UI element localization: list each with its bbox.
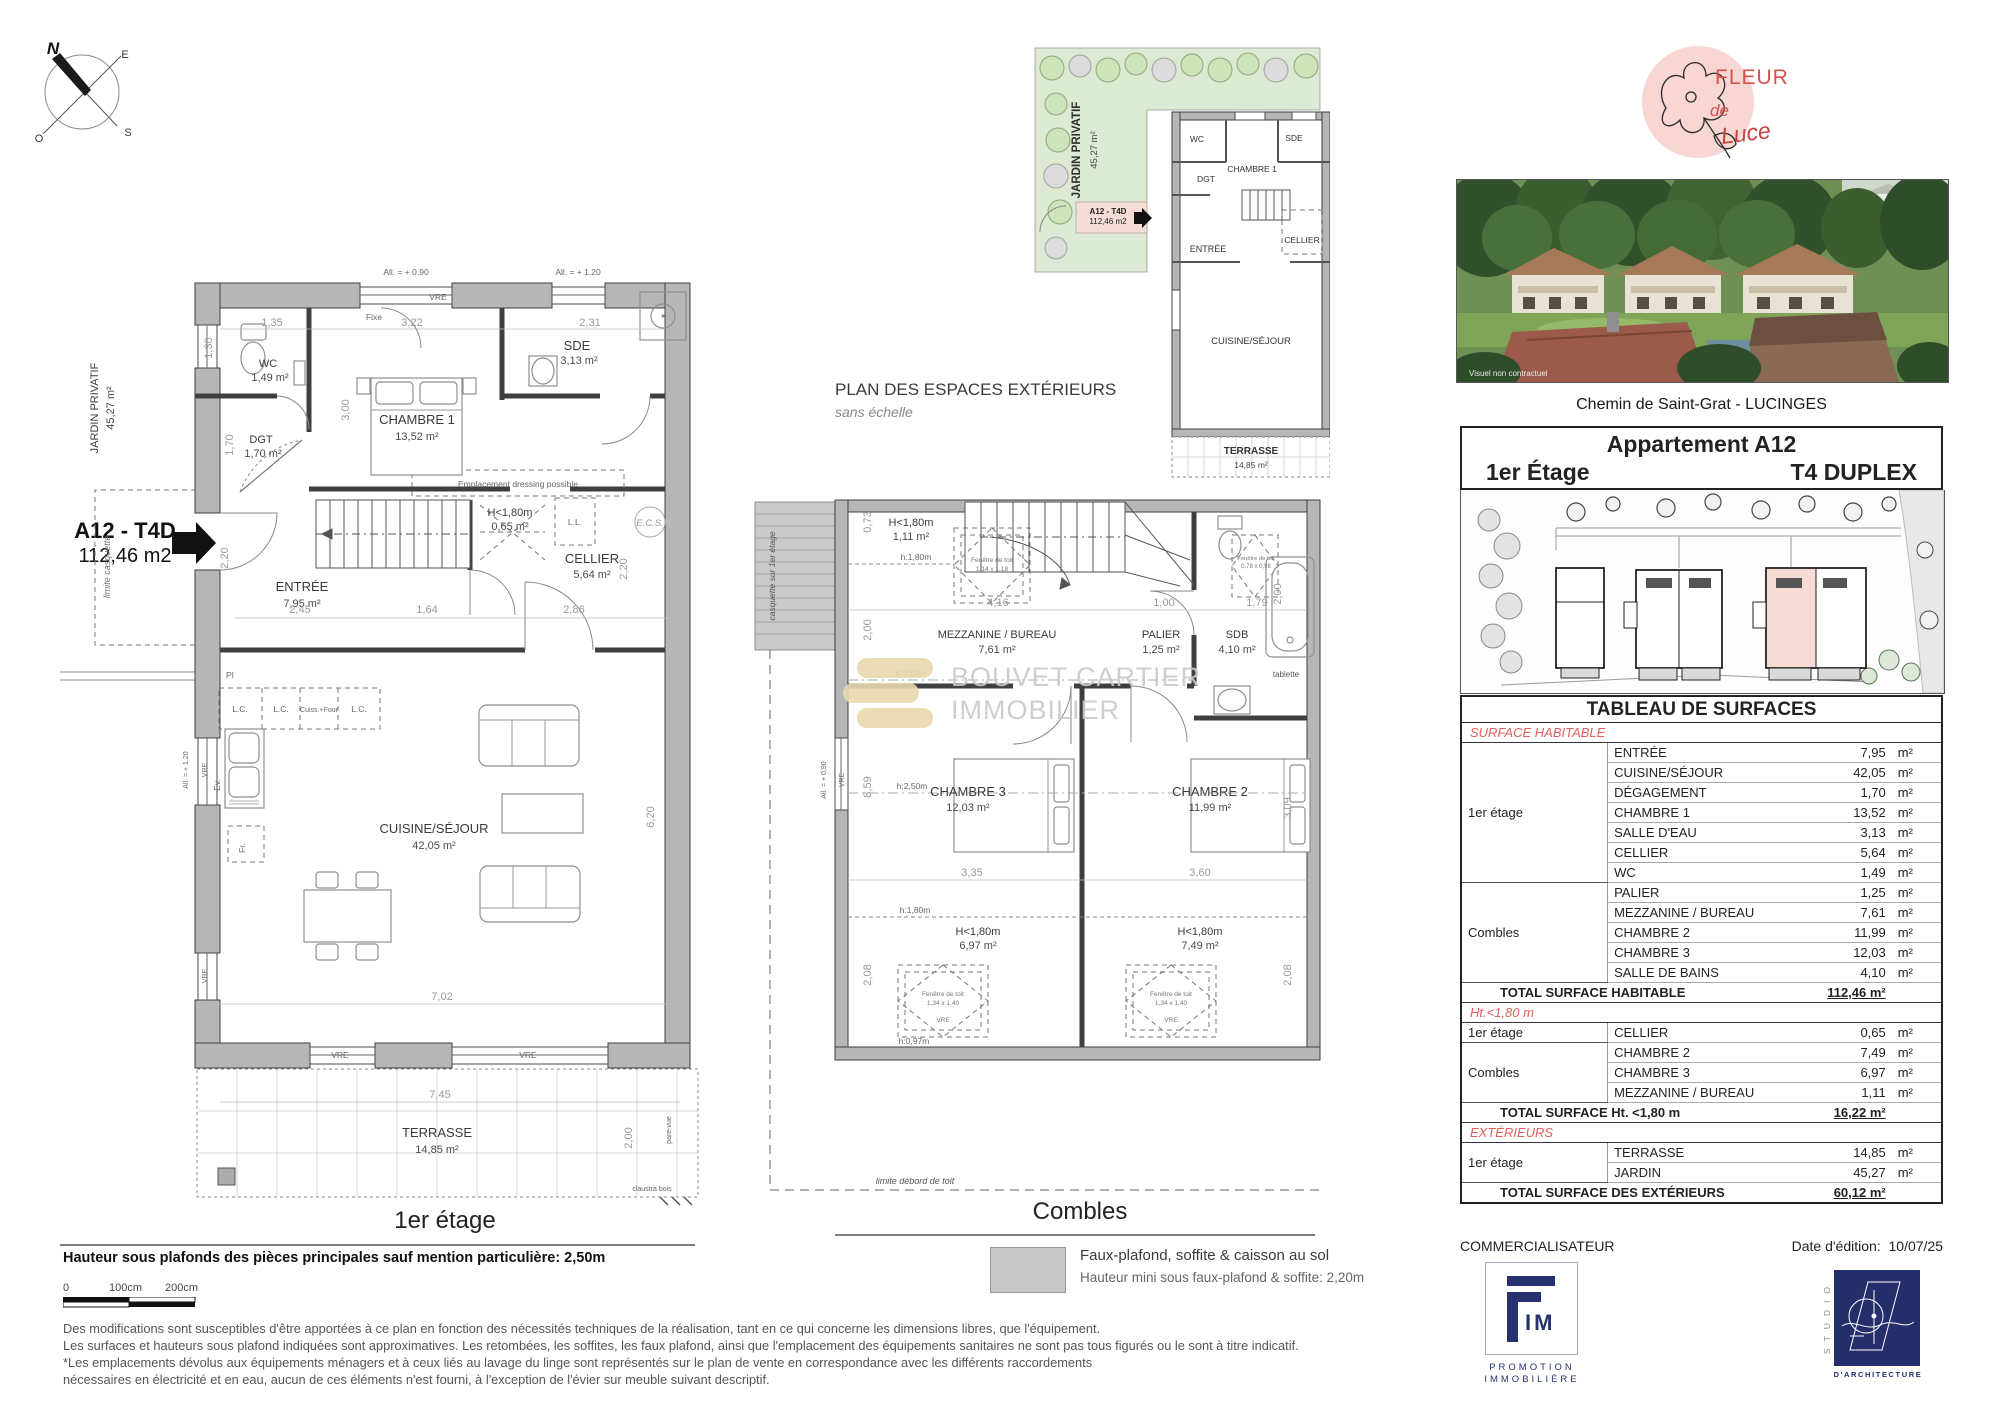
- svg-text:14,85 m²: 14,85 m²: [1234, 460, 1268, 470]
- ev-label: Ev.: [212, 779, 222, 791]
- watermark: BOUVET CARTIER IMMOBILIER: [843, 656, 1201, 732]
- ll-label: L.L.: [568, 517, 582, 527]
- kitchen: L.C. L.C. Cuiss.+Four L.C. Ev. Fr. PI: [212, 670, 380, 862]
- h180-top-label: H<1,80m: [889, 517, 934, 529]
- roof-window-ch3: Fenêtre de toit 1,34 x 1,40 VRE: [898, 965, 988, 1037]
- svg-text:2,20: 2,20: [219, 547, 231, 568]
- site-buildings: [1556, 568, 1866, 680]
- fim-im-text: IM: [1525, 1310, 1555, 1336]
- disclaimer-line3: *Les emplacements dévolus aux équipement…: [63, 1354, 1299, 1371]
- compass-n: N: [47, 39, 60, 58]
- wc-area: 1,49 m²: [251, 372, 289, 384]
- row-unit: m²: [1892, 1143, 1942, 1163]
- fim-logo: IM: [1485, 1262, 1578, 1355]
- svg-text:VRE: VRE: [1164, 1017, 1178, 1024]
- row-value: 7,95: [1795, 743, 1891, 763]
- svg-text:VRE: VRE: [839, 772, 846, 787]
- dgt-area: 1,70 m²: [244, 448, 282, 460]
- total-habitable-value: 112,46 m²: [1795, 983, 1891, 1003]
- lc2-label: L.C.: [273, 704, 289, 714]
- svg-text:2,00: 2,00: [1272, 583, 1284, 604]
- compass-icon: N E S O: [25, 30, 143, 148]
- row-unit: m²: [1892, 963, 1942, 983]
- jardin-label: JARDIN PRIVATIF: [89, 362, 101, 453]
- svg-text:1,14 x 1,18: 1,14 x 1,18: [976, 566, 1009, 573]
- exterior-spaces-plan: JARDIN PRIVATIF 45,27 m² A12 - T4D 112,4…: [1030, 40, 1330, 485]
- h180-label: H<1,80m: [488, 507, 533, 519]
- studio-logo-mark: [1834, 1270, 1920, 1366]
- sde-area: 3,13 m²: [560, 355, 598, 367]
- row-value: 42,05: [1795, 763, 1891, 783]
- dgt-label: DGT: [249, 434, 273, 446]
- wc-label: WC: [259, 358, 277, 370]
- svg-text:VRE: VRE: [519, 1050, 537, 1060]
- h180-area: 0,65 m²: [491, 521, 529, 533]
- photo-caption: Visuel non contractuel: [1469, 369, 1548, 378]
- casquette-label: casquette sur 1er étage: [767, 531, 777, 621]
- combles-beds: [954, 759, 1310, 852]
- apartment-header: Appartement A12 1er Étage T4 DUPLEX: [1460, 426, 1943, 490]
- svg-text:CELLIER: CELLIER: [1284, 235, 1319, 245]
- row-value: 5,64: [1795, 843, 1891, 863]
- chambre3-area: 12,03 m²: [946, 802, 990, 814]
- svg-text:3,00: 3,00: [340, 399, 352, 420]
- row-value: 1,70: [1795, 783, 1891, 803]
- svg-text:h:0,97m: h:0,97m: [899, 1036, 930, 1046]
- dressing-label: Emplacement dressing possible: [458, 479, 578, 489]
- fim-subtitle: PROMOTION IMMOBILIÈRE: [1470, 1362, 1594, 1386]
- row-unit: m²: [1892, 1023, 1942, 1043]
- svg-text:All. = + 0.90: All. = + 0.90: [383, 267, 429, 277]
- total-ht180-label: TOTAL SURFACE Ht. <1,80 m: [1461, 1103, 1795, 1123]
- scale-100: 100cm: [109, 1282, 142, 1294]
- svg-text:7,02: 7,02: [431, 991, 452, 1003]
- svg-text:All. = + 1.20: All. = + 1.20: [555, 267, 601, 277]
- group-combles: Combles: [1461, 883, 1608, 983]
- svg-text:1,34 x 1,40: 1,34 x 1,40: [1155, 1000, 1188, 1007]
- svg-text:1,70: 1,70: [224, 434, 236, 455]
- svg-text:CUISINE/SÉJOUR: CUISINE/SÉJOUR: [1211, 336, 1291, 347]
- fim-promotion: PROMOTION: [1470, 1362, 1594, 1374]
- commercialisateur-label: COMMERCIALISATEUR: [1460, 1238, 1615, 1254]
- mezzanine-area: 7,61 m²: [978, 644, 1016, 656]
- chambre2-area: 11,99 m²: [1189, 802, 1232, 814]
- group-combles: Combles: [1461, 1043, 1608, 1103]
- svg-text:2,00: 2,00: [623, 1127, 635, 1148]
- svg-text:claustra bois: claustra bois: [632, 1186, 672, 1193]
- chambre2-label: CHAMBRE 2: [1172, 784, 1248, 799]
- fim-immobiliere: IMMOBILIÈRE: [1470, 1374, 1594, 1386]
- pi-label: PI: [226, 670, 234, 680]
- brand-de: de: [1710, 101, 1729, 120]
- row-unit: m²: [1892, 823, 1942, 843]
- row-label: CHAMBRE 2: [1608, 1043, 1796, 1063]
- row-unit: m²: [1892, 743, 1942, 763]
- compass-s: S: [124, 127, 131, 139]
- svg-text:1,00: 1,00: [1153, 597, 1174, 609]
- disclaimer-line4: nécessaires en électricité et en eau, au…: [63, 1371, 1299, 1388]
- unit-arrow-icon: [172, 522, 216, 564]
- surface-table: TABLEAU DE SURFACES SURFACE HABITABLE 1e…: [1460, 695, 1943, 1204]
- row-label: PALIER: [1608, 883, 1796, 903]
- table-title: TABLEAU DE SURFACES: [1461, 696, 1942, 723]
- group-1er-etage: 1er étage: [1461, 743, 1608, 883]
- floorplan-combles: casquette sur 1er étage limite débord de…: [740, 490, 1330, 1250]
- row-label: MEZZANINE / BUREAU: [1608, 1083, 1796, 1103]
- row-unit: m²: [1892, 763, 1942, 783]
- svg-text:4,16: 4,16: [987, 597, 1008, 609]
- svg-text:SDE: SDE: [1285, 133, 1303, 143]
- mezzanine-label: MEZZANINE / BUREAU: [938, 629, 1057, 641]
- svg-text:2,45: 2,45: [289, 604, 310, 616]
- h180-ch2-label: H<1,80m: [1178, 926, 1223, 938]
- row-unit: m²: [1892, 1083, 1942, 1103]
- cellier-label: CELLIER: [565, 551, 619, 566]
- legend: Faux-plafond, soffite & caisson au sol H…: [990, 1247, 1364, 1293]
- row-value: 6,97: [1795, 1063, 1891, 1083]
- row-value: 1,25: [1795, 883, 1891, 903]
- h180-top-area: 1,11 m²: [893, 531, 930, 543]
- combles-stairs: [965, 502, 1194, 589]
- svg-text:3,60: 3,60: [1189, 867, 1210, 879]
- caption-1er-etage: 1er étage: [394, 1207, 495, 1234]
- row-unit: m²: [1892, 843, 1942, 863]
- palier-label: PALIER: [1142, 629, 1180, 641]
- scale-bar: 0 100cm 200cm: [63, 1282, 213, 1312]
- row-value: 1,49: [1795, 863, 1891, 883]
- disclaimer-line2: Les surfaces et hauteurs sous plafond in…: [63, 1337, 1299, 1354]
- svg-text:All. = + 0,90: All. = + 0,90: [821, 761, 828, 798]
- cuisine-area: 42,05 m²: [412, 840, 456, 852]
- row-value: 12,03: [1795, 943, 1891, 963]
- svg-text:VRE: VRE: [202, 968, 209, 983]
- legend-line2: Hauteur mini sous faux-plafond & soffite…: [1080, 1270, 1364, 1285]
- section-exterieurs: EXTÉRIEURS: [1461, 1123, 1942, 1143]
- row-label: CHAMBRE 1: [1608, 803, 1796, 823]
- section-habitable: SURFACE HABITABLE: [1461, 723, 1942, 743]
- row-label: SALLE D'EAU: [1608, 823, 1796, 843]
- address: Chemin de Saint-Grat - LUCINGES: [1456, 396, 1947, 414]
- svg-text:VRE: VRE: [429, 292, 447, 302]
- limite-toit-label: limite débord de toit: [876, 1176, 955, 1186]
- svg-text:3,09: 3,09: [1282, 797, 1294, 818]
- svg-text:CHAMBRE 1: CHAMBRE 1: [1227, 164, 1277, 174]
- svg-text:VRE: VRE: [936, 1017, 950, 1024]
- svg-text:2,31: 2,31: [579, 317, 600, 329]
- ext-unit-code: A12 - T4D: [1090, 207, 1127, 216]
- svg-text:7,45: 7,45: [429, 1089, 450, 1101]
- fr-label: Fr.: [237, 843, 247, 853]
- total-ext-label: TOTAL SURFACE DES EXTÉRIEURS: [1461, 1183, 1795, 1204]
- ext-house: WC SDE CHAMBRE 1 DGT ENTRÉE CELLIER CUIS…: [1172, 112, 1330, 477]
- svg-text:0,78 x 0,98: 0,78 x 0,98: [1241, 564, 1271, 570]
- plan-sheet: N E S O JARDIN PRIVATIF 45,27 m² A12 - T…: [0, 0, 2000, 1413]
- row-label: JARDIN: [1608, 1163, 1796, 1183]
- watermark-line1: BOUVET CARTIER: [951, 661, 1201, 694]
- unit-tag: A12 - T4D 112,46 m2: [74, 518, 216, 567]
- disclaimer: Des modifications sont susceptibles d'êt…: [63, 1320, 1299, 1388]
- brand-luce: Luce: [1719, 117, 1772, 149]
- total-habitable-label: TOTAL SURFACE HABITABLE: [1461, 983, 1795, 1003]
- tablette-label: tablette: [1273, 670, 1300, 679]
- row-value: 45,27: [1795, 1163, 1891, 1183]
- svg-text:1,35: 1,35: [261, 317, 282, 329]
- terrace: 7,45 TERRASSE 14,85 m² 2,00 pare-vue cla…: [197, 1069, 698, 1205]
- svg-text:2,08: 2,08: [862, 964, 874, 985]
- limite-casquette-label: limite casquette: [102, 536, 112, 599]
- row-unit: m²: [1892, 943, 1942, 963]
- unit-area: 112,46 m2: [78, 545, 171, 567]
- row-unit: m²: [1892, 863, 1942, 883]
- jardin-privatif-label: JARDIN PRIVATIF 45,27 m²: [89, 362, 117, 453]
- footer-row: COMMERCIALISATEUR Date d'édition: 10/07/…: [1460, 1238, 1943, 1254]
- row-unit: m²: [1892, 1163, 1942, 1183]
- floorplan-1er-etage: JARDIN PRIVATIF 45,27 m² A12 - T4D 112,4…: [40, 260, 710, 1250]
- row-label: CELLIER: [1608, 1023, 1796, 1043]
- studio-architecture-logo: STUDIO D'ARCHITECTURE: [1818, 1268, 1930, 1388]
- row-value: 4,10: [1795, 963, 1891, 983]
- ext-jardin-label: JARDIN PRIVATIF: [1071, 102, 1083, 199]
- cuiss-label: Cuiss.+Four: [300, 707, 339, 714]
- studio-vertical-text: STUDIO: [1822, 1280, 1832, 1354]
- row-value: 0,65: [1795, 1023, 1891, 1043]
- svg-text:DGT: DGT: [1197, 174, 1215, 184]
- svg-text:8,59: 8,59: [862, 776, 874, 797]
- row-value: 1,11: [1795, 1083, 1891, 1103]
- brand-fleur: FLEUR: [1715, 66, 1788, 89]
- svg-text:TERRASSE: TERRASSE: [1224, 446, 1279, 457]
- palier-area: 1,25 m²: [1142, 644, 1180, 656]
- svg-text:Fixe: Fixe: [366, 312, 382, 322]
- row-label: CELLIER: [1608, 843, 1796, 863]
- row-value: 11,99: [1795, 923, 1891, 943]
- row-unit: m²: [1892, 883, 1942, 903]
- group-1er-etage: 1er étage: [1461, 1023, 1608, 1043]
- scale-bar-icon: [63, 1297, 197, 1309]
- sdb-area: 4,10 m²: [1218, 644, 1256, 656]
- cuisine-label: CUISINE/SÉJOUR: [379, 821, 488, 836]
- casquette-strip: casquette sur 1er étage: [755, 502, 835, 650]
- row-label: MEZZANINE / BUREAU: [1608, 903, 1796, 923]
- chambre3-label: CHAMBRE 3: [930, 784, 1006, 799]
- terrasse-area: 14,85 m²: [415, 1144, 459, 1156]
- legend-line1: Faux-plafond, soffite & caisson au sol: [1080, 1247, 1364, 1264]
- row-unit: m²: [1892, 923, 1942, 943]
- scale-0: 0: [63, 1282, 69, 1294]
- row-value: 13,52: [1795, 803, 1891, 823]
- svg-text:Fenêtre de toit: Fenêtre de toit: [971, 557, 1013, 564]
- section-ht180: Ht.<1,80 m: [1461, 1003, 1942, 1023]
- total-ht180-value: 16,22 m²: [1795, 1103, 1891, 1123]
- svg-text:h:2,50m: h:2,50m: [897, 781, 928, 791]
- ecs-label: E.C.S.: [636, 518, 663, 529]
- row-unit: m²: [1892, 1063, 1942, 1083]
- h180-ch2-area: 7,49 m²: [1181, 940, 1219, 952]
- svg-text:Fenêtre de toit: Fenêtre de toit: [1150, 991, 1192, 998]
- disclaimer-line1: Des modifications sont susceptibles d'êt…: [63, 1320, 1299, 1337]
- row-value: 7,61: [1795, 903, 1891, 923]
- row-unit: m²: [1892, 803, 1942, 823]
- svg-text:1,79: 1,79: [1246, 597, 1267, 609]
- project-photo: Visuel non contractuel: [1456, 179, 1949, 383]
- compass-o: O: [35, 133, 44, 145]
- svg-text:1,64: 1,64: [416, 604, 437, 616]
- svg-text:6,20: 6,20: [645, 806, 657, 827]
- apartment-type: T4 DUPLEX: [1790, 459, 1917, 486]
- svg-text:VRE: VRE: [331, 1050, 349, 1060]
- svg-text:VRE: VRE: [202, 762, 209, 777]
- cellier-area: 5,64 m²: [573, 569, 611, 581]
- row-label: CHAMBRE 3: [1608, 1063, 1796, 1083]
- legend-swatch: [990, 1247, 1066, 1293]
- row-label: CUISINE/SÉJOUR: [1608, 763, 1796, 783]
- terrasse-label: TERRASSE: [402, 1125, 472, 1140]
- sdb-label: SDB: [1226, 629, 1249, 641]
- studio-subtitle: D'ARCHITECTURE: [1832, 1370, 1924, 1379]
- site-plan: [1460, 490, 1945, 694]
- svg-text:2,86: 2,86: [563, 604, 584, 616]
- date-edition-value: 10/07/25: [1889, 1238, 1944, 1254]
- chambre1-label: CHAMBRE 1: [379, 412, 455, 427]
- compass-e: E: [121, 49, 128, 61]
- scale-200: 200cm: [165, 1282, 198, 1294]
- date-edition-label: Date d'édition:: [1792, 1238, 1881, 1254]
- watermark-line2: IMMOBILIER: [951, 694, 1201, 727]
- row-label: CHAMBRE 3: [1608, 943, 1796, 963]
- row-unit: m²: [1892, 1043, 1942, 1063]
- row-label: CHAMBRE 2: [1608, 923, 1796, 943]
- ext-unit-area: 112,46 m2: [1089, 217, 1127, 226]
- svg-text:0,73: 0,73: [862, 511, 874, 532]
- entree-label: ENTRÉE: [276, 579, 329, 594]
- h180-ch3-label: H<1,80m: [956, 926, 1001, 938]
- svg-text:3,35: 3,35: [961, 867, 982, 879]
- chambre1-area: 13,52 m²: [395, 431, 439, 443]
- total-ext-value: 60,12 m²: [1795, 1183, 1891, 1204]
- row-label: SALLE DE BAINS: [1608, 963, 1796, 983]
- svg-text:pare-vue: pare-vue: [666, 1116, 673, 1144]
- apartment-floor: 1er Étage: [1486, 459, 1590, 486]
- row-value: 7,49: [1795, 1043, 1891, 1063]
- row-unit: m²: [1892, 783, 1942, 803]
- row-label: ENTRÉE: [1608, 743, 1796, 763]
- h180-ch3-area: 6,97 m²: [959, 940, 997, 952]
- sdb-fixtures: Fenêtre de toit 0,78 x 0,98 tablette: [1214, 516, 1314, 714]
- svg-text:2,00: 2,00: [862, 619, 874, 640]
- svg-text:2,08: 2,08: [1282, 964, 1294, 985]
- lc3-label: L.C.: [351, 704, 367, 714]
- apartment-title: Appartement A12: [1462, 431, 1941, 458]
- fleur-de-luce-logo: FLEUR de Luce: [1618, 38, 1788, 173]
- row-unit: m²: [1892, 903, 1942, 923]
- svg-text:h:1,80m: h:1,80m: [900, 905, 931, 915]
- jardin-area: 45,27 m²: [105, 386, 117, 430]
- sde-label: SDE: [564, 338, 591, 353]
- svg-text:WC: WC: [1190, 134, 1204, 144]
- unit-code: A12 - T4D: [74, 518, 175, 543]
- row-value: 3,13: [1795, 823, 1891, 843]
- svg-text:2,20: 2,20: [618, 558, 630, 579]
- row-label: WC: [1608, 863, 1796, 883]
- svg-text:1,34 x 1,40: 1,34 x 1,40: [927, 1000, 960, 1007]
- bouvet-cartier-logo-icon: [843, 656, 935, 732]
- svg-text:Fenêtre de toit: Fenêtre de toit: [922, 991, 964, 998]
- row-label: DÉGAGEMENT: [1608, 783, 1796, 803]
- svg-text:h:1,80m: h:1,80m: [901, 552, 932, 562]
- svg-text:1,30: 1,30: [203, 337, 215, 358]
- svg-text:Fenêtre de toit: Fenêtre de toit: [1237, 556, 1275, 562]
- photo-chalets: [1504, 244, 1861, 313]
- svg-text:ENTRÉE: ENTRÉE: [1190, 244, 1227, 254]
- ext-jardin-area: 45,27 m²: [1089, 131, 1100, 169]
- svg-text:All. = + 1.20: All. = + 1.20: [183, 751, 190, 788]
- caption-combles: Combles: [1033, 1198, 1128, 1225]
- roof-window-ch2: Fenêtre de toit 1,34 x 1,40 VRE: [1126, 965, 1216, 1037]
- row-label: TERRASSE: [1608, 1143, 1796, 1163]
- lc1-label: L.C.: [232, 704, 248, 714]
- ceiling-height-note: Hauteur sous plafonds des pièces princip…: [63, 1250, 605, 1266]
- row-value: 14,85: [1795, 1143, 1891, 1163]
- group-1er-etage: 1er étage: [1461, 1143, 1608, 1183]
- stairs: [316, 500, 470, 568]
